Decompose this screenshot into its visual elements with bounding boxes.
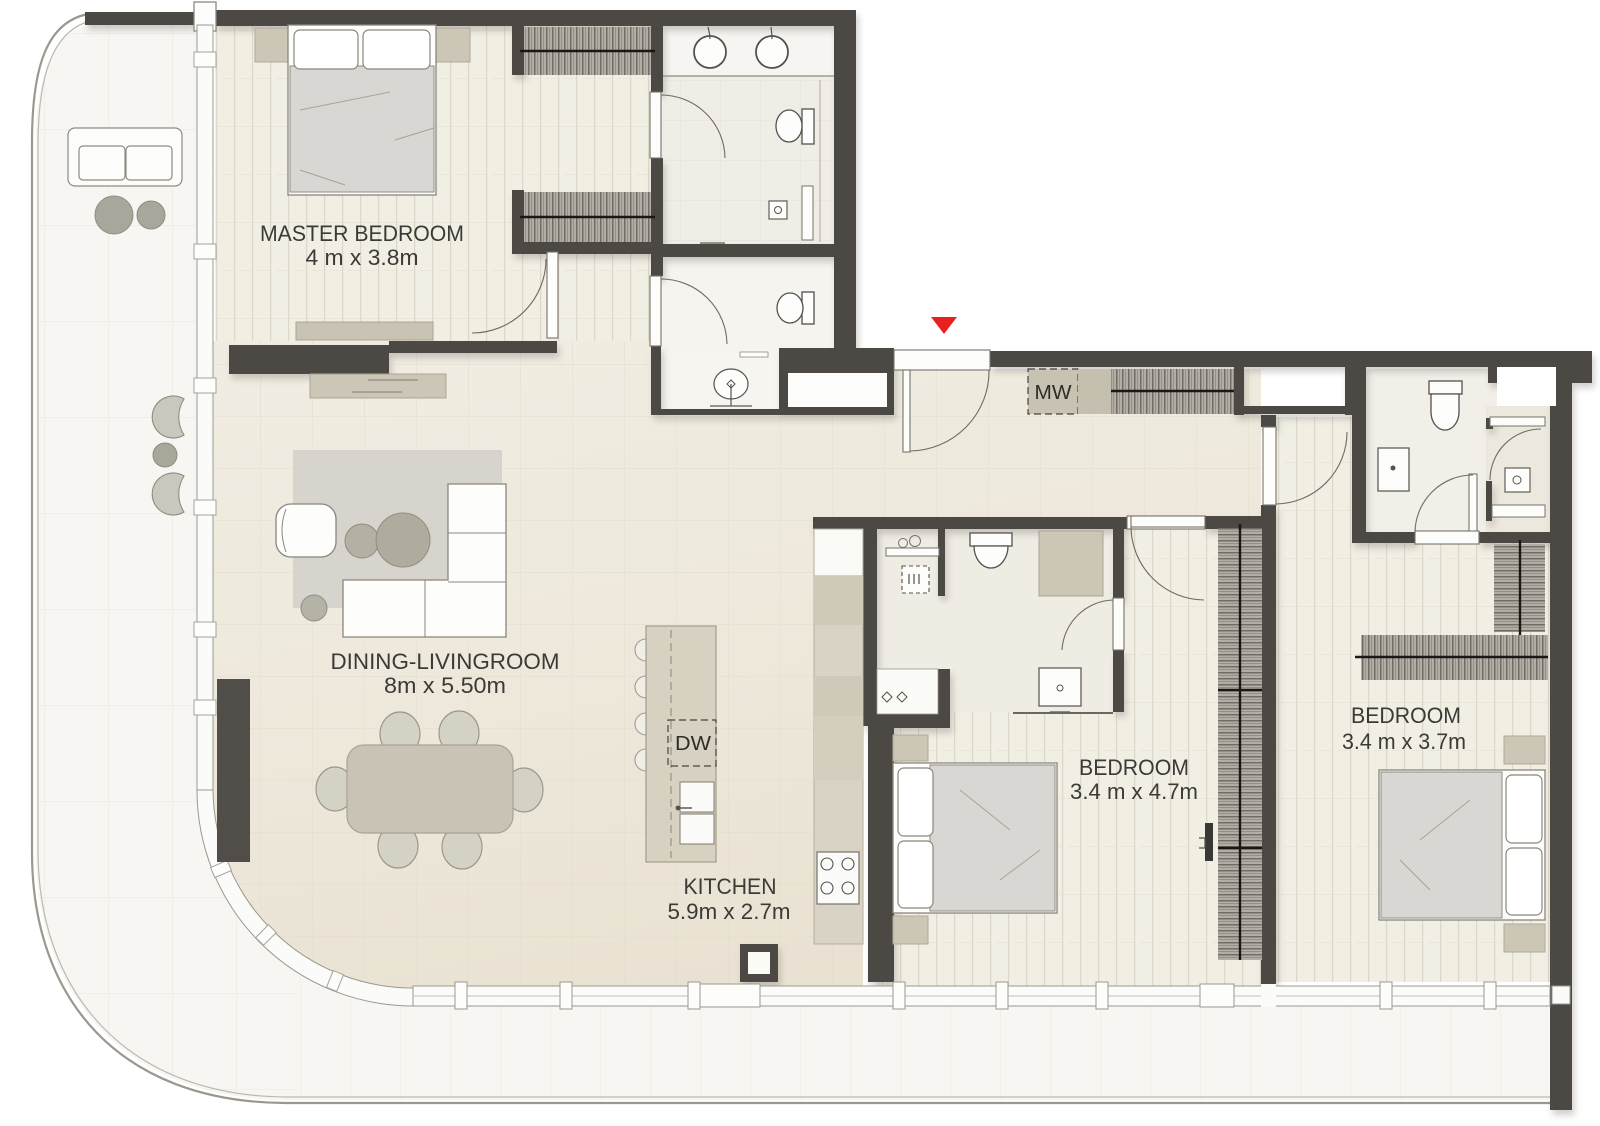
svg-text:MW: MW — [1035, 382, 1072, 404]
svg-text:MASTER BEDROOM: MASTER BEDROOM — [260, 221, 464, 246]
svg-text:8m x 5.50m: 8m x 5.50m — [384, 673, 506, 698]
svg-text:KITCHEN: KITCHEN — [684, 874, 777, 899]
svg-text:BEDROOM: BEDROOM — [1079, 755, 1189, 780]
svg-text:BEDROOM: BEDROOM — [1351, 703, 1461, 728]
svg-text:3.4 m x 4.7m: 3.4 m x 4.7m — [1070, 779, 1198, 804]
svg-text:4 m x 3.8m: 4 m x 3.8m — [306, 245, 419, 270]
svg-text:3.4 m x 3.7m: 3.4 m x 3.7m — [1342, 729, 1466, 754]
svg-text:DINING-LIVINGROOM: DINING-LIVINGROOM — [331, 649, 560, 674]
svg-text:5.9m x 2.7m: 5.9m x 2.7m — [668, 899, 791, 924]
svg-text:DW: DW — [675, 733, 711, 755]
